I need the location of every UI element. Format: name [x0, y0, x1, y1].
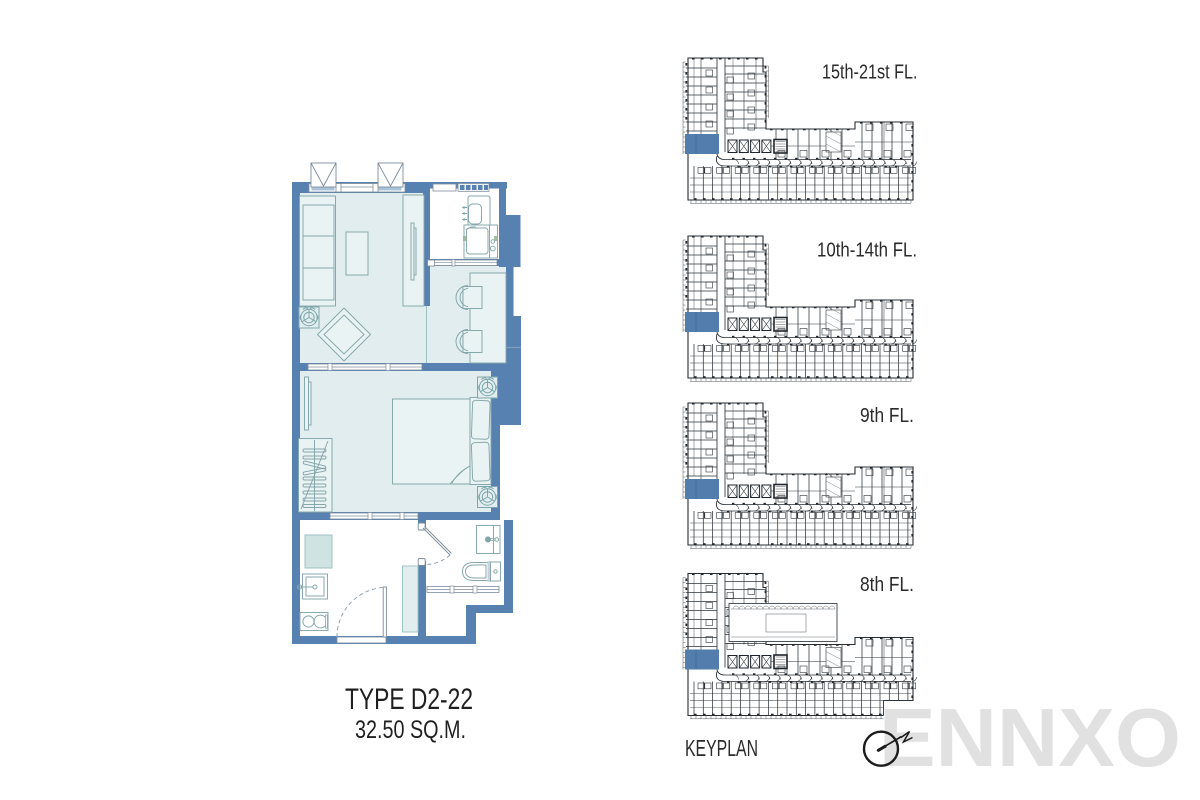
svg-text:15th-21st FL.: 15th-21st FL.	[822, 62, 918, 84]
svg-text:8th FL.: 8th FL.	[860, 574, 914, 596]
svg-text:KEYPLAN: KEYPLAN	[685, 735, 758, 761]
svg-text:TYPE D2-22: TYPE D2-22	[345, 683, 473, 716]
svg-text:ENNXO: ENNXO	[879, 691, 1181, 784]
svg-text:9th FL.: 9th FL.	[860, 405, 914, 427]
svg-text:10th-14th FL.: 10th-14th FL.	[817, 240, 917, 262]
svg-text:32.50 SQ.M.: 32.50 SQ.M.	[355, 716, 466, 744]
